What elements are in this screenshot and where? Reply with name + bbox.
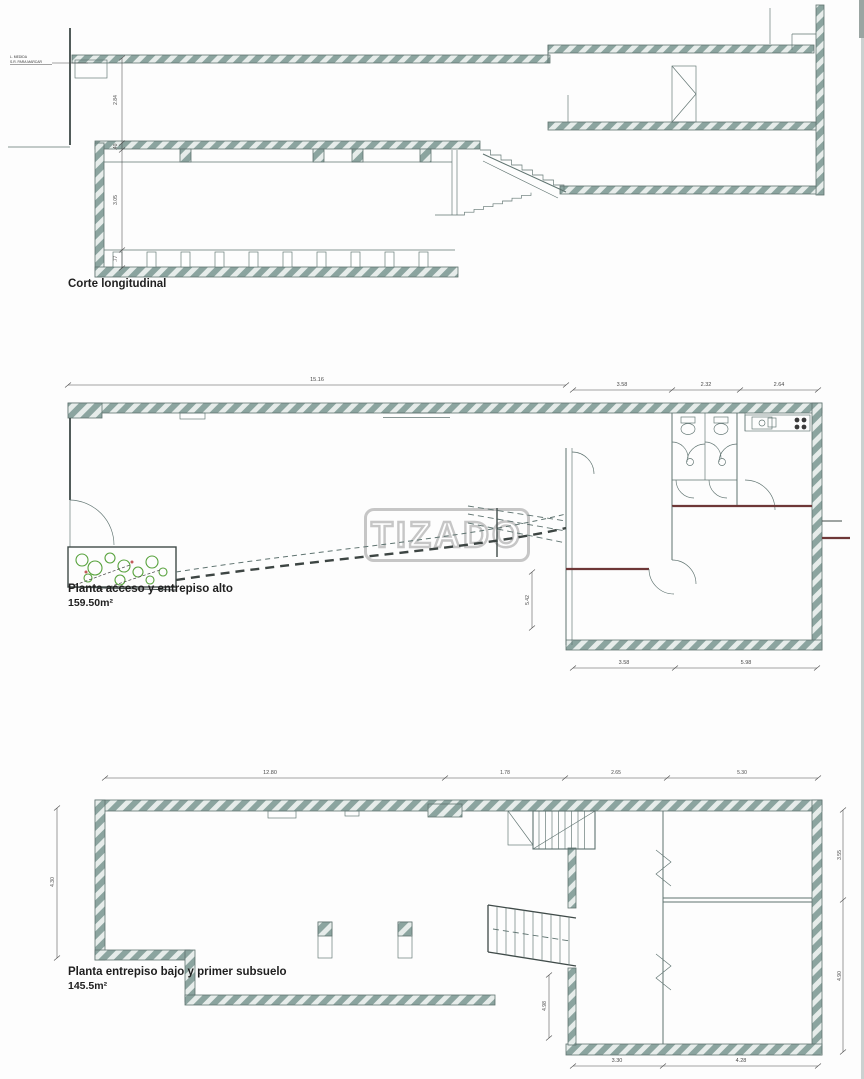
section-walls [8,5,824,277]
dim-label: 3.55 [837,850,843,860]
plan-lower-stair-upper [508,811,595,849]
kitchen-counter [745,413,810,431]
dim-label: 2.65 [611,770,621,776]
dim-label: 4.28 [736,1058,747,1064]
dim-label: 12.80 [263,770,277,776]
mezzanine-edge-dashed [176,514,566,580]
section-dimensions: 2.84 .40 3.05 .77 [113,56,125,271]
dim-label: 15.16 [310,377,324,383]
plan-lower-pilasters [318,922,412,958]
section-stairs [435,150,566,215]
dim-label: 5.30 [737,770,747,776]
plan-lower-title: Planta entrepiso bajo y primer subsuelo [68,966,287,978]
plan-upper-view: 15.16 3.58 2.32 2.64 3.58 5.98 5.42 [65,377,850,671]
section-note-line2: S.R. PARA MARCAR [10,60,43,64]
dim-label: .40 [113,143,119,150]
dim-label: .77 [113,255,119,262]
dim-label: 1.78 [500,770,510,776]
drawing-sheet: TIZADO [0,0,864,1079]
interior-walls [566,506,850,594]
section-title: Corte longitudinal [68,278,166,290]
dim-label: 2.64 [774,382,785,388]
plan-upper-dimensions: 15.16 3.58 2.32 2.64 3.58 5.98 5.42 [65,377,821,671]
dim-label: 4.98 [542,1001,548,1011]
dim-label: 5.42 [525,595,531,605]
plan-upper-area: 159.50m² [68,597,113,609]
dim-label: 4.90 [837,971,843,981]
plan-lower-walls [95,800,822,1055]
plan-lower-area: 145.5m² [68,980,108,992]
plan-lower-interior [656,811,812,1044]
scan-edge-artifact-dark [859,0,864,38]
drawing-canvas: L. MEDIDA S.R. PARA MARCAR 2.84 .40 3.05… [0,0,864,1079]
dim-label: 5.98 [741,660,752,666]
plan-upper-walls [68,403,822,650]
plan-lower-view: 12.80 1.78 2.65 5.30 4.30 3.55 4.90 3.30 [50,770,846,1069]
plan-upper-title: Planta acceso y entrepiso alto [68,583,233,595]
dim-label: 2.32 [701,382,712,388]
section-note-line1: L. MEDIDA [10,55,28,59]
dim-label: 3.58 [619,660,630,666]
dim-label: 3.30 [612,1058,623,1064]
dim-label: 3.58 [617,382,628,388]
dim-label: 4.30 [50,877,56,887]
plan-lower-stair-basement [488,905,576,966]
entrance-door [70,500,114,547]
bathrooms [572,413,775,510]
section-door-elevation [672,66,696,122]
section-view: L. MEDIDA S.R. PARA MARCAR 2.84 .40 3.05… [8,5,824,290]
dim-label: 3.05 [113,195,119,205]
dim-label: 2.84 [113,95,119,105]
